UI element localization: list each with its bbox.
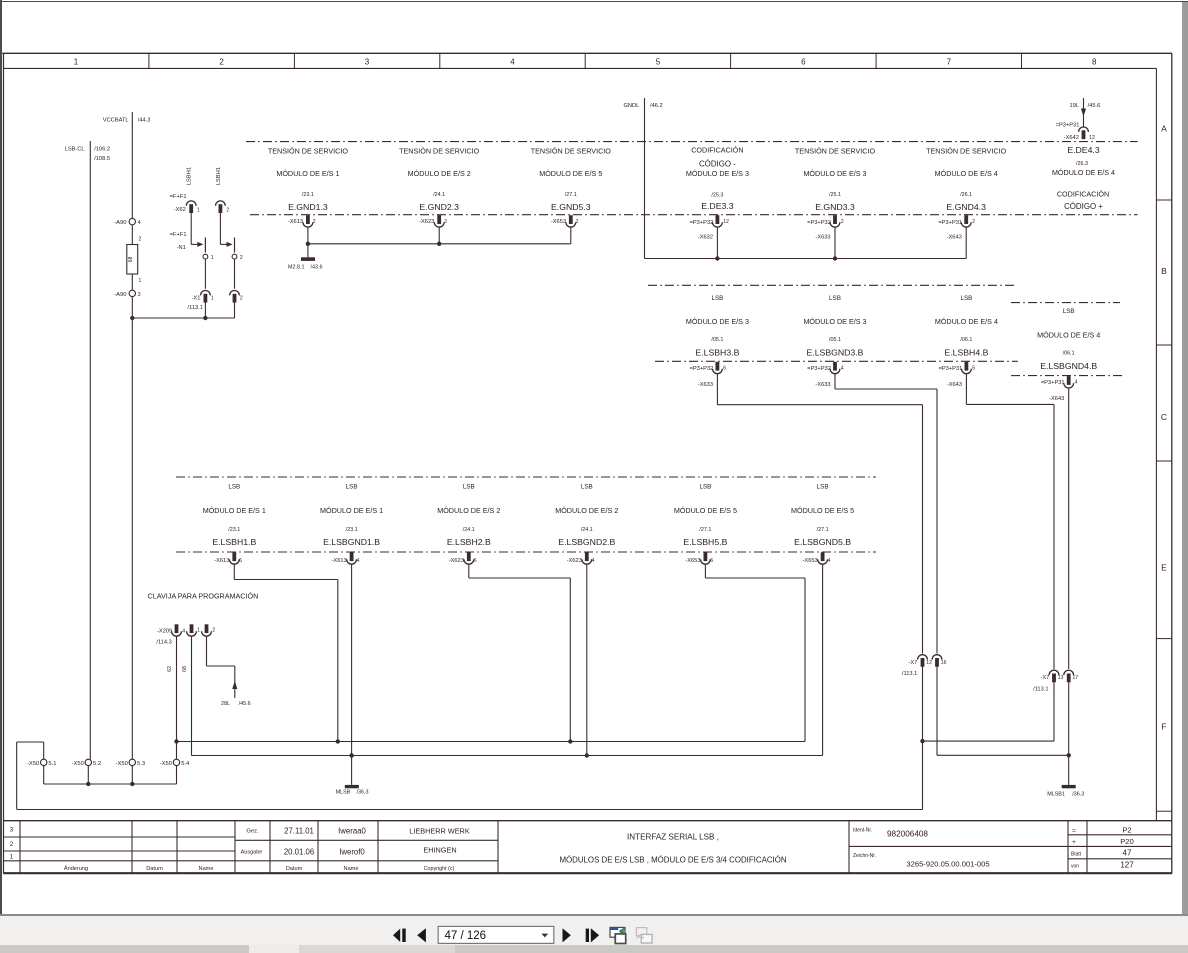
svg-text:6: 6 — [723, 365, 726, 371]
svg-text:TENSIÓN DE SERVICIO: TENSIÓN DE SERVICIO — [926, 146, 1007, 155]
svg-text:INTERFAZ SERIAL LSB ,: INTERFAZ SERIAL LSB , — [627, 833, 719, 842]
svg-text:4: 4 — [828, 558, 831, 564]
svg-text:E.LSBH1.B: E.LSBH1.B — [212, 537, 256, 547]
svg-text:-X613: -X613 — [288, 219, 303, 225]
svg-text:=P3+P32: =P3+P32 — [690, 366, 714, 372]
svg-text:-X613: -X613 — [214, 558, 229, 564]
svg-text:-X50: -X50 — [72, 761, 84, 767]
svg-text:47 / 126: 47 / 126 — [445, 930, 487, 942]
svg-text:MÓDULOS DE E/S LSB , MÓDULO DE: MÓDULOS DE E/S LSB , MÓDULO DE E/S 3/4 C… — [559, 856, 786, 865]
svg-text:1: 1 — [211, 296, 214, 302]
svg-text:TENSIÓN DE SERVICIO: TENSIÓN DE SERVICIO — [268, 146, 349, 155]
svg-text:1: 1 — [211, 255, 214, 261]
svg-text:MLSB1: MLSB1 — [1047, 791, 1065, 797]
svg-text:5.4: 5.4 — [181, 761, 190, 767]
svg-text:62: 62 — [167, 666, 173, 672]
svg-text:4: 4 — [1075, 380, 1078, 386]
svg-text:/113.1: /113.1 — [1033, 686, 1048, 692]
svg-text:-X209: -X209 — [157, 629, 172, 635]
svg-text:1: 1 — [74, 58, 79, 67]
svg-text:6: 6 — [801, 58, 806, 67]
svg-text:M2.8.1: M2.8.1 — [288, 265, 304, 271]
svg-text:2: 2 — [240, 296, 243, 302]
svg-text:/23.1: /23.1 — [346, 527, 358, 533]
svg-text:Zeichn-Nr.: Zeichn-Nr. — [853, 853, 876, 859]
svg-text:Blatt: Blatt — [1071, 852, 1082, 858]
svg-text:E.LSBGND4.B: E.LSBGND4.B — [1040, 361, 1097, 371]
svg-text:5.3: 5.3 — [137, 761, 145, 767]
svg-text:/24.1: /24.1 — [463, 527, 475, 533]
svg-text:2: 2 — [219, 58, 224, 67]
svg-text:E.DE3.3: E.DE3.3 — [701, 201, 734, 211]
svg-text:127: 127 — [1120, 861, 1134, 870]
svg-text:-X643: -X643 — [1049, 396, 1064, 402]
svg-text:5.1: 5.1 — [48, 761, 56, 767]
svg-text:E.LSBH2.B: E.LSBH2.B — [447, 537, 491, 547]
svg-text:LSB-CL: LSB-CL — [65, 146, 85, 152]
svg-text:/46.2: /46.2 — [650, 103, 663, 109]
svg-text:Ausgabe: Ausgabe — [241, 850, 263, 856]
svg-text:/45.6: /45.6 — [239, 701, 251, 707]
svg-text:Name: Name — [344, 866, 359, 872]
svg-text:/26.3: /26.3 — [1076, 161, 1088, 167]
svg-text:-X642: -X642 — [1064, 135, 1079, 141]
svg-text:5: 5 — [656, 58, 661, 67]
svg-text:C: C — [1161, 412, 1167, 422]
svg-text:E.LSBH4.B: E.LSBH4.B — [944, 348, 988, 358]
svg-text:E.DE4.3: E.DE4.3 — [1067, 145, 1100, 155]
svg-text:Iweraa0: Iweraa0 — [338, 827, 366, 836]
svg-text:/24.1: /24.1 — [433, 192, 445, 198]
svg-text:27.11.01: 27.11.01 — [284, 827, 314, 836]
svg-text:LSBH1: LSBH1 — [187, 167, 193, 185]
svg-text:MLSB: MLSB — [336, 790, 351, 796]
svg-text:=P3+P31: =P3+P31 — [1041, 380, 1065, 386]
svg-text:4: 4 — [510, 58, 515, 67]
svg-text:13: 13 — [1058, 675, 1064, 681]
svg-text:2: 2 — [10, 841, 14, 848]
svg-text:=: = — [1072, 828, 1076, 835]
svg-text:/43.6: /43.6 — [311, 265, 323, 271]
svg-text:CÓDIGO +: CÓDIGO + — [1064, 202, 1103, 211]
svg-text:-X62: -X62 — [174, 207, 186, 213]
svg-text:LSB: LSB — [711, 295, 723, 302]
svg-text:-X653: -X653 — [685, 558, 700, 564]
svg-text:=P3+P31: =P3+P31 — [939, 366, 963, 372]
svg-text:MÓDULO DE E/S 3: MÓDULO DE E/S 3 — [803, 169, 866, 178]
svg-text:-X633: -X633 — [698, 382, 713, 388]
svg-text:MÓDULO DE E/S 4: MÓDULO DE E/S 4 — [1037, 330, 1100, 339]
svg-text:2: 2 — [972, 219, 975, 225]
svg-text:Änderung: Änderung — [64, 865, 88, 872]
svg-text:/26.1: /26.1 — [960, 192, 972, 198]
svg-text:-X633: -X633 — [815, 234, 830, 240]
svg-text:A: A — [1161, 124, 1167, 134]
svg-text:/45.6: /45.6 — [1088, 103, 1101, 109]
svg-text:3: 3 — [138, 292, 141, 298]
svg-text:7: 7 — [947, 58, 952, 67]
svg-text:Datum: Datum — [146, 866, 163, 872]
svg-text:-X643: -X643 — [947, 382, 962, 388]
svg-text:/113.1: /113.1 — [188, 305, 203, 311]
svg-text:/23.1: /23.1 — [228, 527, 240, 533]
svg-text:E.LSBGND5.B: E.LSBGND5.B — [794, 537, 851, 547]
svg-text:6: 6 — [474, 558, 477, 564]
svg-text:/108.5: /108.5 — [94, 156, 110, 162]
svg-text:2: 2 — [576, 219, 579, 225]
svg-text:MÓDULO DE E/S 5: MÓDULO DE E/S 5 — [674, 506, 737, 515]
svg-text:/44.3: /44.3 — [138, 117, 151, 123]
svg-text:LSBH1: LSBH1 — [216, 167, 222, 185]
svg-text:MÓDULO DE E/S 1: MÓDULO DE E/S 1 — [320, 506, 383, 515]
svg-text:P20: P20 — [1120, 837, 1134, 846]
svg-text:/25.3: /25.3 — [711, 192, 723, 198]
svg-text:-X7: -X7 — [908, 660, 917, 666]
svg-text:=P3+P32: =P3+P32 — [807, 366, 831, 372]
svg-text:MÓDULO DE E/S 1: MÓDULO DE E/S 1 — [276, 169, 339, 178]
svg-text:LSB: LSB — [960, 295, 972, 302]
svg-text:/36.3: /36.3 — [357, 790, 369, 796]
svg-text:MÓDULO DE E/S 3: MÓDULO DE E/S 3 — [686, 317, 749, 326]
svg-text:von: von — [1071, 864, 1079, 870]
svg-text:P2: P2 — [1122, 826, 1131, 835]
svg-text:12: 12 — [723, 219, 729, 225]
svg-text:-X633: -X633 — [815, 382, 830, 388]
svg-text:/27.1: /27.1 — [699, 527, 711, 533]
svg-text:5.2: 5.2 — [93, 761, 101, 767]
svg-text:=F+F1: =F+F1 — [170, 194, 187, 200]
svg-text:4: 4 — [138, 220, 141, 226]
svg-text:/113.1: /113.1 — [902, 671, 917, 677]
svg-text:-X632: -X632 — [698, 234, 713, 240]
svg-text:TENSIÓN DE SERVICIO: TENSIÓN DE SERVICIO — [399, 146, 480, 155]
svg-text:MÓDULO DE E/S 4: MÓDULO DE E/S 4 — [935, 169, 998, 178]
svg-text:17: 17 — [1073, 675, 1079, 681]
svg-text:MÓDULO DE E/S 2: MÓDULO DE E/S 2 — [437, 506, 500, 515]
svg-text:-X643: -X643 — [947, 234, 962, 240]
svg-text:2: 2 — [139, 237, 142, 243]
svg-text:EHINGEN: EHINGEN — [423, 846, 456, 855]
svg-text:CODIFICACIÓN: CODIFICACIÓN — [1057, 190, 1109, 199]
svg-text:/106.2: /106.2 — [94, 146, 110, 152]
svg-text:12: 12 — [1089, 135, 1095, 141]
svg-text:LIEBHERR WERK: LIEBHERR WERK — [409, 827, 470, 836]
svg-text:1: 1 — [10, 854, 14, 861]
svg-text:MÓDULO DE E/S 4: MÓDULO DE E/S 4 — [935, 317, 998, 326]
svg-text:LSB: LSB — [699, 484, 711, 491]
svg-text:VCCBATL: VCCBATL — [103, 117, 129, 123]
svg-text:4: 4 — [357, 558, 360, 564]
svg-text:2: 2 — [240, 255, 243, 261]
svg-text:E.LSBGND3.B: E.LSBGND3.B — [807, 348, 864, 358]
svg-text:E.LSBGND2.B: E.LSBGND2.B — [558, 537, 615, 547]
svg-text:=F+F1: =F+F1 — [170, 232, 187, 238]
svg-text:-X653: -X653 — [551, 219, 566, 225]
svg-text:TENSIÓN DE SERVICIO: TENSIÓN DE SERVICIO — [795, 146, 876, 155]
svg-text:/05.1: /05.1 — [829, 337, 841, 343]
svg-text:B: B — [1161, 266, 1167, 276]
svg-text:MÓDULO DE E/S 2: MÓDULO DE E/S 2 — [408, 169, 471, 178]
svg-text:=P3+P31: =P3+P31 — [938, 220, 962, 226]
svg-text:Copyright (c): Copyright (c) — [424, 866, 455, 872]
svg-text:2: 2 — [226, 207, 229, 213]
svg-text:MÓDULO DE E/S 5: MÓDULO DE E/S 5 — [791, 506, 854, 515]
svg-text:+: + — [1072, 839, 1076, 846]
svg-text:E.LSBGND1.B: E.LSBGND1.B — [323, 537, 380, 547]
svg-text:TENSIÓN DE SERVICIO: TENSIÓN DE SERVICIO — [531, 146, 612, 155]
svg-text:4: 4 — [592, 558, 595, 564]
svg-text:LSB: LSB — [1063, 308, 1075, 315]
svg-text:4: 4 — [841, 365, 844, 371]
svg-text:-X7: -X7 — [1040, 675, 1049, 681]
svg-text:MÓDULO DE E/S 3: MÓDULO DE E/S 3 — [803, 317, 866, 326]
svg-text:Name: Name — [199, 866, 214, 872]
svg-text:/06.1: /06.1 — [960, 337, 972, 343]
svg-text:/24.1: /24.1 — [581, 527, 593, 533]
svg-text:1: 1 — [197, 207, 200, 213]
svg-text:Ident-Nr.: Ident-Nr. — [853, 828, 872, 834]
svg-text:MÓDULO DE E/S 4: MÓDULO DE E/S 4 — [1052, 168, 1115, 177]
svg-text:GNDL: GNDL — [623, 103, 639, 109]
svg-text:LSB: LSB — [817, 484, 829, 491]
svg-text:/06.1: /06.1 — [1063, 350, 1075, 356]
svg-text:2: 2 — [212, 628, 215, 634]
svg-text:-X50: -X50 — [116, 761, 128, 767]
svg-text:E.LSBH5.B: E.LSBH5.B — [683, 537, 727, 547]
svg-text:/23.1: /23.1 — [302, 192, 314, 198]
svg-text:68: 68 — [128, 257, 134, 263]
svg-text:MÓDULO DE E/S 1: MÓDULO DE E/S 1 — [203, 506, 266, 515]
svg-text:20.01.06: 20.01.06 — [284, 848, 314, 857]
svg-text:=P3+P31: =P3+P31 — [1056, 122, 1080, 128]
svg-text:28L: 28L — [221, 701, 230, 707]
svg-text:/27.1: /27.1 — [817, 527, 829, 533]
svg-text:/114.3: /114.3 — [156, 640, 171, 646]
svg-text:-X50: -X50 — [160, 761, 172, 767]
svg-text:1: 1 — [197, 627, 200, 633]
svg-text:-A90: -A90 — [114, 220, 126, 226]
svg-text:-X653: -X653 — [803, 558, 818, 564]
svg-text:6: 6 — [239, 558, 242, 564]
svg-text:3: 3 — [10, 827, 14, 834]
svg-text:MÓDULO DE E/S 3: MÓDULO DE E/S 3 — [686, 169, 749, 178]
svg-text:12: 12 — [926, 660, 932, 666]
svg-text:E.LSBH3.B: E.LSBH3.B — [695, 348, 739, 358]
svg-text:-X613: -X613 — [332, 558, 347, 564]
svg-text:MÓDULO DE E/S 5: MÓDULO DE E/S 5 — [539, 169, 602, 178]
svg-text:CODIFICACIÓN: CODIFICACIÓN — [691, 145, 743, 154]
svg-text:68: 68 — [182, 666, 188, 672]
svg-text:/36.3: /36.3 — [1072, 791, 1084, 797]
svg-text:E: E — [1161, 563, 1167, 573]
svg-text:LSB: LSB — [228, 484, 240, 491]
svg-text:982006408: 982006408 — [887, 830, 928, 839]
svg-text:8: 8 — [1092, 58, 1097, 67]
svg-text:E.GND1.3: E.GND1.3 — [288, 202, 328, 212]
svg-text:-X623: -X623 — [449, 558, 464, 564]
svg-text:47: 47 — [1123, 849, 1132, 858]
svg-text:3: 3 — [365, 58, 370, 67]
svg-text:Iwerof0: Iwerof0 — [339, 848, 365, 857]
svg-text:E.GND3.3: E.GND3.3 — [815, 202, 855, 212]
svg-text:-X50: -X50 — [27, 761, 39, 767]
svg-text:CLAVIJA PARA PROGRAMACIÓN: CLAVIJA PARA PROGRAMACIÓN — [148, 592, 259, 601]
svg-text:19L: 19L — [1070, 103, 1080, 109]
svg-text:LSB: LSB — [346, 484, 358, 491]
svg-text:/27.1: /27.1 — [565, 192, 577, 198]
svg-text:-A90: -A90 — [114, 292, 126, 298]
svg-text:LSB: LSB — [581, 484, 593, 491]
svg-text:-X1: -X1 — [192, 296, 201, 302]
svg-text:4: 4 — [182, 628, 185, 634]
svg-text:2: 2 — [313, 219, 316, 225]
svg-text:-X623: -X623 — [419, 219, 434, 225]
svg-text:6: 6 — [710, 558, 713, 564]
svg-text:/05.1: /05.1 — [711, 337, 723, 343]
svg-text:=P3+P32: =P3+P32 — [807, 220, 831, 226]
svg-text:MÓDULO DE E/S 2: MÓDULO DE E/S 2 — [555, 506, 618, 515]
svg-text:Datum: Datum — [286, 866, 303, 872]
svg-text:Gez.: Gez. — [246, 829, 259, 835]
svg-text:=P3+P32: =P3+P32 — [690, 220, 714, 226]
svg-text:1: 1 — [139, 278, 142, 284]
svg-text:3265-920.05.00.001-005: 3265-920.05.00.001-005 — [906, 860, 989, 869]
svg-text:LSB: LSB — [463, 484, 475, 491]
svg-text:CÓDIGO -: CÓDIGO - — [699, 159, 736, 168]
svg-text:2: 2 — [444, 219, 447, 225]
svg-text:E.GND2.3: E.GND2.3 — [419, 202, 459, 212]
svg-text:16: 16 — [941, 660, 947, 666]
svg-text:LSB: LSB — [829, 295, 841, 302]
svg-text:F: F — [1161, 722, 1166, 732]
svg-text:-N1: -N1 — [177, 245, 186, 251]
svg-text:E.GND4.3: E.GND4.3 — [946, 202, 986, 212]
svg-text:-X623: -X623 — [567, 558, 582, 564]
svg-text:6: 6 — [972, 365, 975, 371]
svg-text:E.GND5.3: E.GND5.3 — [551, 202, 591, 212]
svg-text:/25.1: /25.1 — [829, 192, 841, 198]
svg-text:2: 2 — [841, 219, 844, 225]
